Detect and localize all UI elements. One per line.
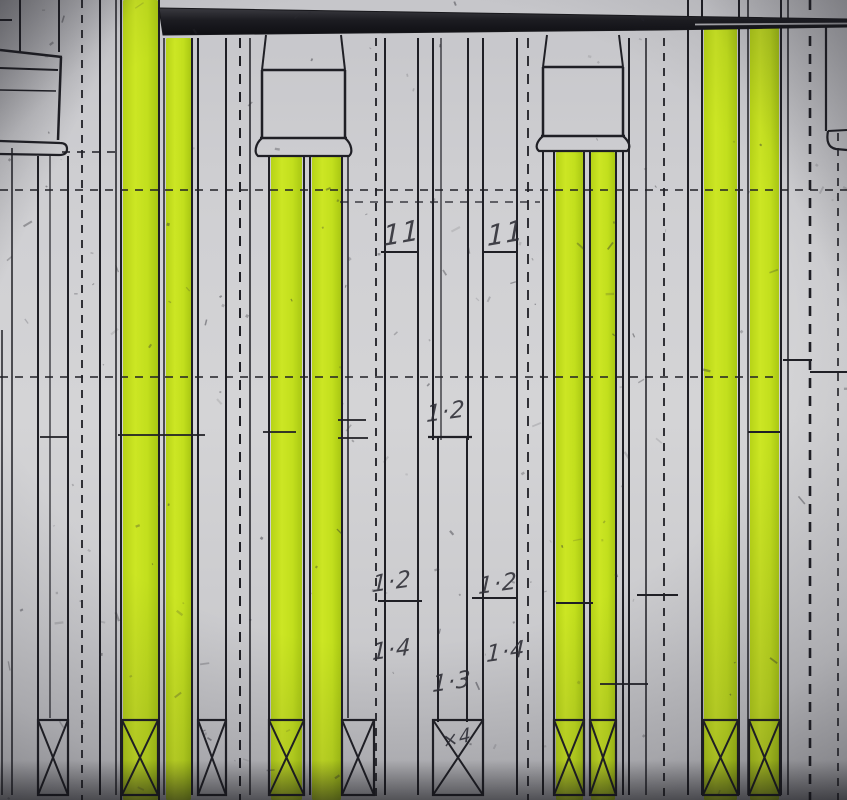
speck: [365, 213, 368, 215]
speck: [87, 549, 91, 552]
capital-flare: [256, 138, 352, 156]
speck: [310, 58, 313, 61]
speck: [56, 592, 58, 594]
speck: [665, 229, 666, 232]
highlight-stripe: [123, 0, 158, 800]
speck: [475, 682, 480, 690]
highlight-stripe: [556, 152, 583, 800]
speck: [92, 283, 95, 285]
speck: [619, 386, 622, 388]
speck: [815, 163, 819, 167]
speck: [45, 185, 47, 187]
speck: [20, 608, 24, 611]
speck: [60, 159, 62, 160]
capital-neck-line: [341, 35, 345, 70]
speck: [72, 484, 75, 487]
speck: [596, 138, 598, 141]
capital-edge-path: [0, 68, 58, 70]
speck: [275, 148, 280, 151]
speck: [8, 158, 12, 162]
slab-band-split-line: [695, 24, 847, 25]
speck: [449, 530, 454, 535]
speck: [234, 760, 236, 762]
capital-edge-path: [0, 50, 62, 57]
speck: [544, 591, 547, 593]
speck: [101, 621, 106, 624]
speck: [831, 199, 834, 201]
speck: [412, 88, 414, 91]
speck: [221, 304, 225, 308]
handwritten-annotation: 1·4: [372, 633, 412, 666]
speck: [53, 525, 55, 527]
speck: [23, 220, 32, 227]
slab-edge-band: [159, 8, 847, 35]
capital-edge-path: [58, 57, 61, 140]
scanned-drawing-photo: 11111·21·21·21·41·41·3×4: [0, 0, 847, 800]
speck: [521, 472, 525, 476]
speck: [406, 74, 408, 77]
speck: [493, 744, 497, 749]
speck: [49, 41, 54, 46]
speck: [632, 599, 634, 602]
highlight-stripe: [312, 157, 341, 800]
speck: [345, 285, 347, 288]
speck: [431, 198, 436, 204]
speck: [392, 672, 394, 675]
capital-edge-path: [0, 90, 56, 91]
highlight-stripe: [166, 38, 191, 800]
speck: [110, 328, 118, 335]
speck: [638, 379, 645, 384]
highlight-stripe: [591, 152, 615, 800]
speck: [654, 185, 656, 188]
speck: [510, 281, 516, 284]
speck: [204, 319, 207, 325]
speck: [48, 131, 50, 133]
speck: [597, 61, 600, 64]
speck: [378, 253, 381, 255]
speck: [74, 293, 78, 294]
capital-neck-line: [619, 35, 623, 67]
capital-edge-path: [0, 141, 67, 155]
capital-neck-line: [262, 35, 266, 70]
speck: [487, 296, 491, 302]
handwritten-annotation: ×4: [442, 723, 473, 753]
structural-drawing-canvas: 11111·21·21·21·41·41·3×4: [0, 0, 847, 800]
speck: [843, 186, 847, 192]
speck: [216, 398, 222, 405]
speck: [632, 333, 635, 337]
speck: [90, 252, 93, 254]
speck: [451, 226, 461, 232]
speck: [740, 330, 744, 334]
capital-neck-line: [543, 35, 547, 67]
handwritten-annotation: 1·4: [486, 635, 526, 668]
speck: [243, 758, 249, 761]
handwritten-annotation: 1·2: [426, 395, 466, 428]
speck: [530, 581, 532, 583]
speck: [61, 15, 65, 22]
speck: [606, 293, 614, 296]
highlight-stripe: [750, 25, 779, 800]
speck: [245, 314, 249, 318]
handwritten-annotation: 1·2: [478, 567, 518, 600]
speck: [458, 594, 461, 597]
speck: [819, 186, 824, 194]
speck: [99, 653, 103, 656]
speck: [200, 662, 209, 665]
speck: [642, 734, 646, 738]
speck: [531, 258, 533, 261]
speck: [394, 331, 398, 335]
speck: [798, 496, 806, 505]
highlight-stripe: [271, 157, 302, 800]
speck: [260, 536, 264, 540]
speck: [532, 422, 541, 427]
handwritten-annotation: 1·3: [432, 665, 472, 698]
speck: [42, 9, 45, 11]
highlight-stripe: [704, 25, 737, 800]
speck: [351, 439, 354, 442]
capital-flare: [537, 136, 630, 151]
speck: [405, 473, 408, 475]
speck: [24, 319, 28, 324]
capital-edge-path: [827, 131, 847, 150]
speck: [453, 1, 456, 6]
speck: [59, 721, 65, 728]
speck: [219, 295, 222, 298]
speck: [549, 540, 552, 543]
speck: [192, 147, 195, 149]
speck: [202, 730, 205, 732]
speck: [204, 732, 207, 735]
speck: [512, 621, 515, 624]
speck: [534, 304, 536, 306]
speck: [219, 391, 221, 393]
speck: [427, 383, 431, 387]
speck: [428, 339, 430, 342]
speck: [588, 55, 592, 58]
speck: [601, 539, 603, 541]
speck: [103, 364, 105, 366]
speck: [655, 438, 662, 444]
speck: [7, 797, 10, 800]
handwritten-annotation: 11: [383, 213, 420, 253]
speck: [207, 737, 212, 741]
speck: [54, 621, 63, 624]
speck: [639, 38, 642, 41]
capital-edge-path: [828, 130, 847, 131]
handwritten-annotations-layer: 11111·21·21·21·41·41·3×4: [372, 213, 526, 753]
speck: [369, 47, 371, 49]
speck: [83, 722, 85, 724]
speck: [8, 661, 11, 670]
speck: [442, 269, 447, 275]
handwritten-annotation: 11: [487, 213, 524, 253]
speck: [475, 298, 479, 302]
handwritten-annotation: 1·2: [372, 565, 412, 598]
